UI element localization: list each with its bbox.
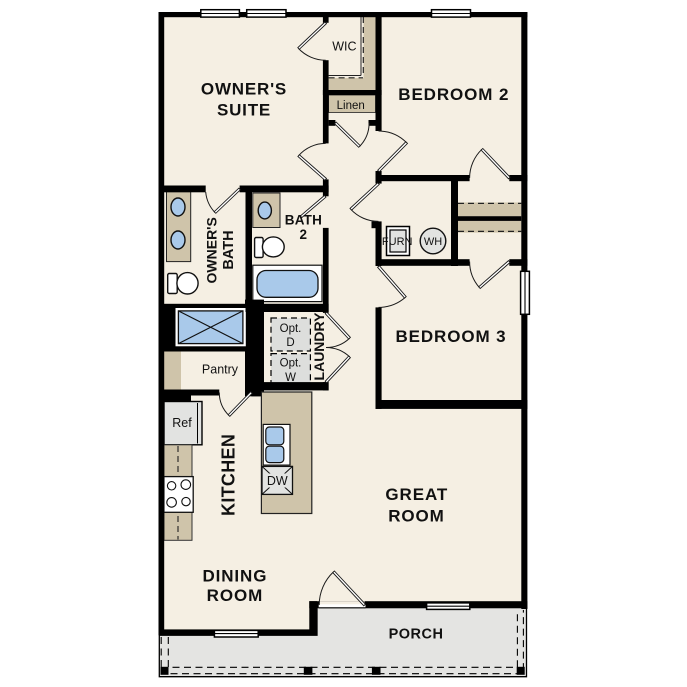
svg-text:FURN: FURN (382, 236, 413, 248)
svg-text:Opt.: Opt. (280, 323, 302, 335)
svg-text:OWNER'S: OWNER'S (201, 80, 287, 99)
svg-text:DW: DW (267, 474, 288, 488)
svg-text:Opt.: Opt. (280, 358, 302, 370)
svg-text:ROOM: ROOM (207, 586, 263, 605)
svg-text:WIC: WIC (332, 40, 356, 54)
svg-text:Pantry: Pantry (202, 363, 239, 377)
svg-text:BEDROOM 3: BEDROOM 3 (395, 327, 506, 346)
svg-text:BATH: BATH (285, 213, 322, 228)
svg-text:KITCHEN: KITCHEN (219, 434, 239, 516)
svg-text:DINING: DINING (202, 567, 267, 586)
svg-text:2: 2 (300, 227, 308, 242)
svg-text:OWNER'S: OWNER'S (203, 217, 219, 283)
svg-text:LAUNDRY: LAUNDRY (311, 312, 327, 381)
svg-text:WH: WH (424, 236, 442, 248)
svg-text:Ref: Ref (172, 416, 192, 430)
svg-text:D: D (286, 337, 294, 349)
svg-text:Linen: Linen (337, 100, 365, 112)
svg-text:GREAT: GREAT (385, 485, 448, 504)
svg-text:BATH: BATH (221, 230, 237, 269)
svg-text:BEDROOM 2: BEDROOM 2 (398, 85, 509, 104)
svg-text:W: W (285, 372, 296, 384)
svg-text:PORCH: PORCH (389, 627, 444, 643)
svg-text:SUITE: SUITE (217, 101, 271, 120)
svg-text:ROOM: ROOM (388, 507, 444, 526)
